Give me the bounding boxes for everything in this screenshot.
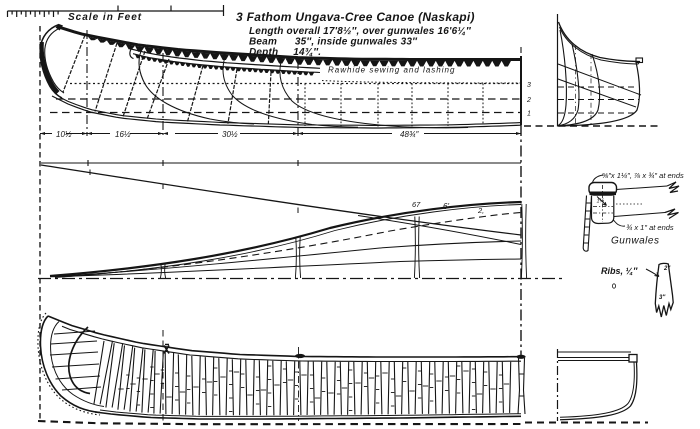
svg-text:30½: 30½ — [222, 130, 238, 139]
svg-text:2,: 2, — [477, 206, 484, 215]
svg-text:Rawhide sewing and lashing: Rawhide sewing and lashing — [328, 66, 455, 75]
svg-text:Ribs, ¼″: Ribs, ¼″ — [601, 266, 638, 276]
svg-text:Beam 35″, inside gunwales: Beam 35″, inside gunwales 33″ — [249, 37, 418, 48]
svg-text:Gunwales: Gunwales — [611, 236, 659, 247]
svg-text:10½: 10½ — [56, 130, 72, 139]
svg-text:1: 1 — [527, 111, 531, 118]
svg-text:Length overall 17'8½″, over gu: Length overall 17'8½″, over gunwales 16'… — [249, 26, 472, 37]
svg-text:¾ x 1″ at ends: ¾ x 1″ at ends — [626, 223, 674, 232]
svg-text:67: 67 — [412, 200, 421, 209]
svg-text:⅝″x 1¼″, ⅞ x ¾″ at ends: ⅝″x 1¼″, ⅞ x ¾″ at ends — [602, 171, 684, 180]
svg-text:3: 3 — [527, 82, 531, 89]
svg-text:2: 2 — [526, 97, 531, 104]
svg-text:1¼: 1¼ — [597, 199, 605, 205]
svg-text:2″: 2″ — [663, 266, 671, 272]
svg-text:3″: 3″ — [659, 295, 666, 301]
svg-text:6': 6' — [443, 202, 449, 211]
svg-text:Scale in Feet: Scale in Feet — [68, 12, 142, 23]
svg-text:3 Fathom Ungava-Cree Canoe (Na: 3 Fathom Ungava-Cree Canoe (Naskapi) — [236, 10, 475, 24]
svg-text:16½: 16½ — [115, 130, 131, 139]
svg-text:48¾″: 48¾″ — [400, 130, 420, 139]
